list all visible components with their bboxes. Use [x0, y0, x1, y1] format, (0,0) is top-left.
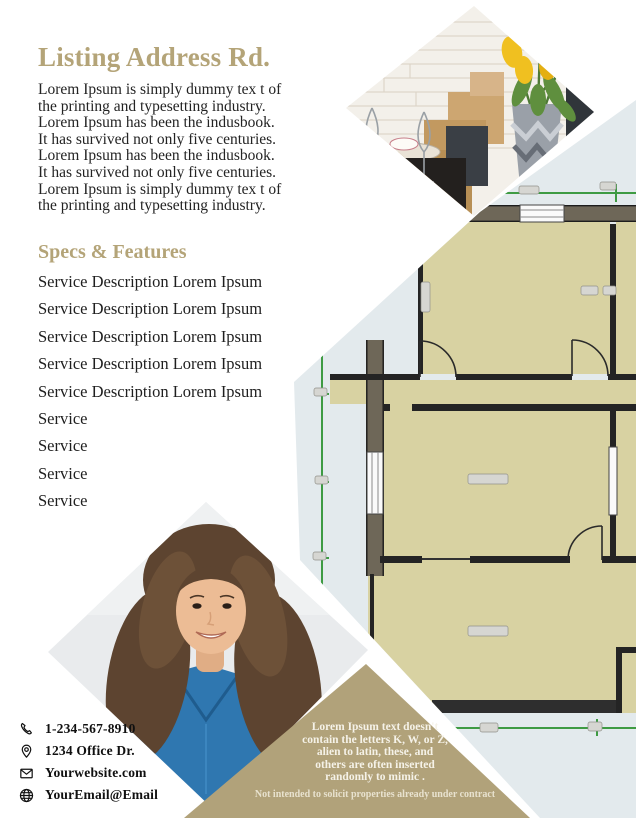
- service-item: Service Description Lorem Ipsum: [38, 268, 338, 295]
- website-url: Yourwebsite.com: [45, 765, 147, 781]
- location-pin-icon: [18, 743, 35, 760]
- services-list: Service Description Lorem Ipsum Service …: [38, 268, 338, 515]
- service-item: Service: [38, 432, 338, 459]
- globe-icon: [18, 787, 35, 804]
- flyer-page: Listing Address Rd. Lorem Ipsum is simpl…: [0, 0, 636, 818]
- service-item: Service Description Lorem Ipsum: [38, 350, 338, 377]
- specs-heading: Specs & Features: [38, 241, 187, 264]
- listing-title: Listing Address Rd.: [38, 42, 270, 73]
- contact-section: 1-234-567-8910 1234 Office Dr. Yourwebsi…: [18, 718, 158, 806]
- agent-face: [176, 566, 246, 654]
- contact-phone-row: 1-234-567-8910: [18, 718, 158, 740]
- service-item: Service Description Lorem Ipsum: [38, 378, 338, 405]
- contact-address-row: 1234 Office Dr.: [18, 740, 158, 762]
- contact-website-row: Yourwebsite.com: [18, 762, 158, 784]
- service-item: Service Description Lorem Ipsum: [38, 323, 338, 350]
- phone-icon: [18, 721, 35, 738]
- email-address: YourEmail@Email: [45, 787, 158, 803]
- service-item: Service: [38, 405, 338, 432]
- contact-email-row: YourEmail@Email: [18, 784, 158, 806]
- callout-text: Lorem Ipsum text doesn't contain the let…: [235, 721, 515, 784]
- callout-disclaimer: Not intended to solicit properties alrea…: [189, 789, 561, 800]
- service-item: Service: [38, 460, 338, 487]
- envelope-icon: [18, 765, 35, 782]
- phone-number: 1-234-567-8910: [45, 721, 136, 737]
- office-address: 1234 Office Dr.: [45, 743, 135, 759]
- service-item: Service: [38, 487, 338, 514]
- service-item: Service Description Lorem Ipsum: [38, 295, 338, 322]
- intro-paragraph: Lorem Ipsum is simply dummy tex t of the…: [38, 82, 338, 215]
